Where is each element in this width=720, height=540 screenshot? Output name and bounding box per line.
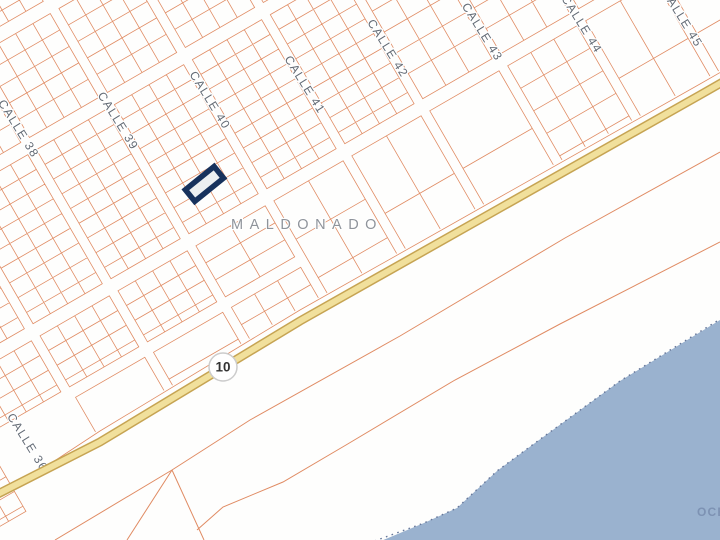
svg-text:MALDONADO: MALDONADO [231,217,383,233]
svg-text:OCÉANO: OCÉANO [697,504,720,519]
svg-text:10: 10 [215,360,230,375]
